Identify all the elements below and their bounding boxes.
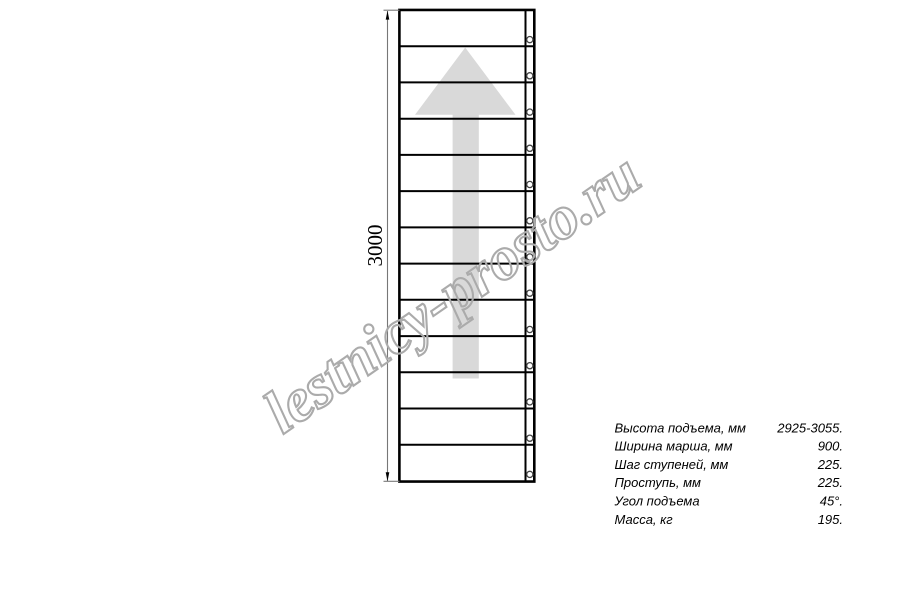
svg-text:3000: 3000	[363, 225, 387, 267]
svg-text:Угол подъема: Угол подъема	[614, 494, 700, 509]
svg-text:2925-3055.: 2925-3055.	[776, 420, 843, 435]
svg-text:225.: 225.	[817, 457, 843, 472]
svg-text:45°.: 45°.	[820, 494, 843, 509]
svg-text:Шаг ступеней, мм: Шаг ступеней, мм	[615, 457, 729, 472]
svg-text:225.: 225.	[817, 475, 843, 490]
svg-text:195.: 195.	[818, 512, 843, 527]
svg-text:Высота подъема, мм: Высота подъема, мм	[615, 420, 746, 435]
svg-text:Ширина марша, мм: Ширина марша, мм	[615, 439, 733, 454]
svg-text:900.: 900.	[818, 439, 843, 454]
svg-text:Масса, кг: Масса, кг	[615, 512, 674, 527]
svg-text:Проступь, мм: Проступь, мм	[615, 475, 702, 490]
